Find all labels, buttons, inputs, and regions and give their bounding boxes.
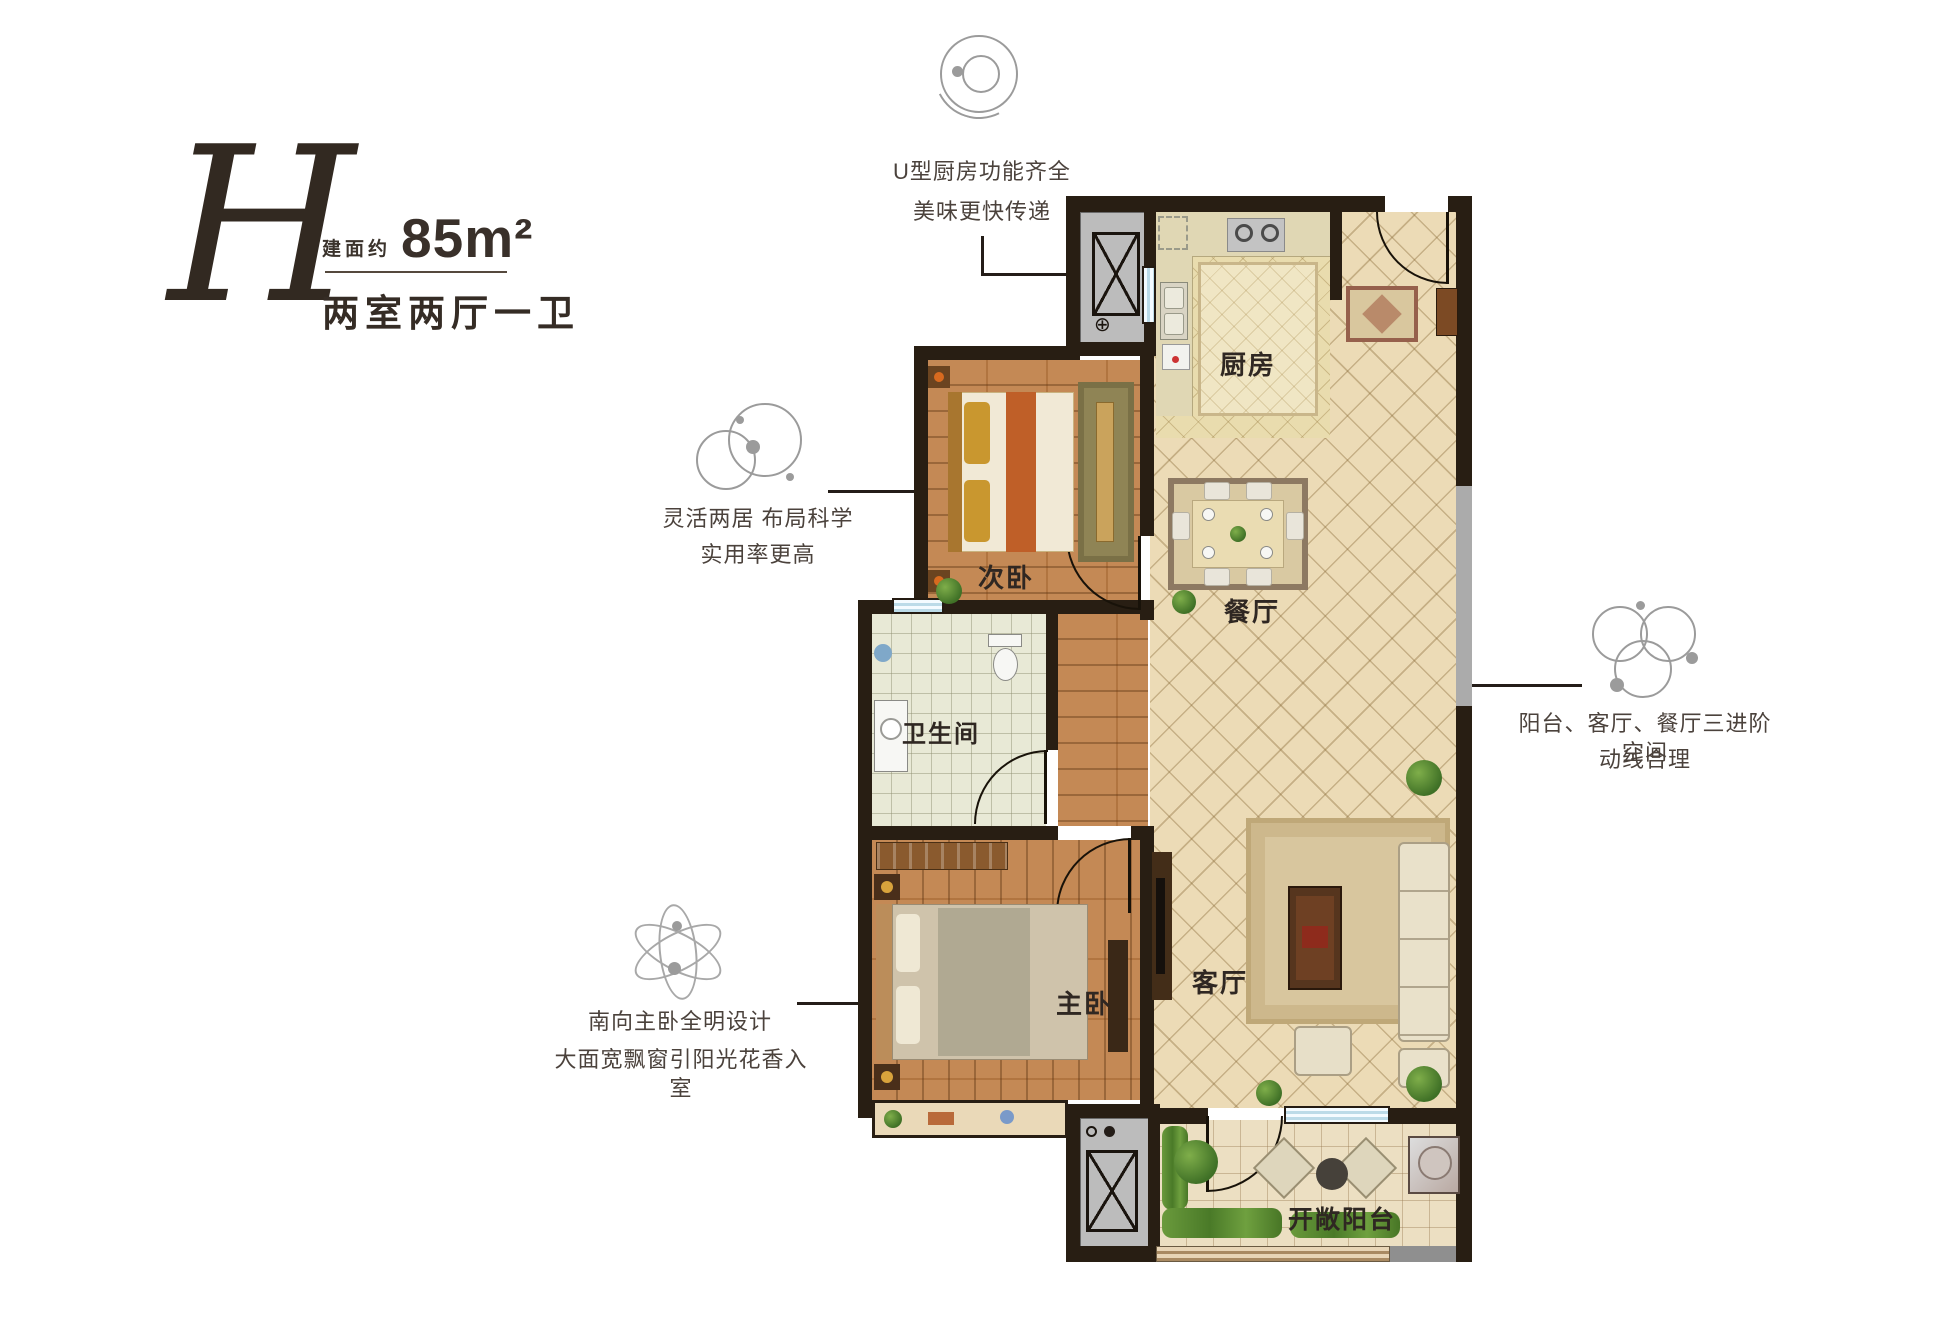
kitchen-annotation-line1: U型厨房功能齐全 xyxy=(862,158,1102,187)
living-plant-left xyxy=(1256,1080,1282,1106)
kitchen-sink-basin1 xyxy=(1164,287,1184,309)
balcony-tree xyxy=(1174,1140,1218,1184)
bedrooms-annotation-icon-small xyxy=(696,430,756,490)
core-marker-circle xyxy=(1086,1126,1097,1137)
circulation-annotation-icon-dot3 xyxy=(1610,678,1624,692)
wall-bottomcore-left xyxy=(1066,1104,1080,1262)
living-sofa xyxy=(1398,842,1450,1042)
master-wardrobe xyxy=(876,842,1008,870)
area-value: 85m² xyxy=(401,206,533,270)
bedroom2-pillow1 xyxy=(964,402,990,464)
dining-chair-top2 xyxy=(1246,482,1272,500)
wall-core-left xyxy=(1066,196,1080,356)
washing-machine-drum xyxy=(1418,1146,1452,1180)
label-kitchen: 厨房 xyxy=(1220,345,1276,382)
elevator-shaft-top xyxy=(1092,232,1140,316)
master-lamp1 xyxy=(881,881,893,893)
bay-books xyxy=(928,1112,954,1125)
label-balcony: 开敞阳台 xyxy=(1288,1200,1396,1236)
area-label: 建面约 xyxy=(322,234,391,270)
toilet-bowl xyxy=(993,648,1018,681)
living-plant-bottom xyxy=(1406,1066,1442,1102)
bedrooms-annotation-icon-dot xyxy=(746,440,760,454)
wall-bath-right-upper xyxy=(1046,614,1058,750)
dining-chair-left xyxy=(1172,512,1190,540)
dining-chair-bottom2 xyxy=(1246,568,1272,586)
wall-bedroom2-top xyxy=(914,346,1080,360)
bedrooms-annotation-icon-dot3 xyxy=(786,473,794,481)
living-armchair xyxy=(1294,1026,1352,1076)
bedrooms-annotation-line2: 实用率更高 xyxy=(652,541,864,570)
area-row: 建面约 85m² xyxy=(322,206,533,270)
bedroom2-door-leaf xyxy=(1138,536,1141,610)
kitchen-window xyxy=(1142,266,1156,324)
entry-cabinet xyxy=(1436,288,1458,336)
wall-kitchen-foyer-stub xyxy=(1330,196,1342,300)
master-blanket xyxy=(938,908,1030,1056)
kitchen-counter-dashed xyxy=(1158,216,1188,250)
stove-burner-right xyxy=(1261,224,1279,242)
floorplan-poster: H 建面约 85m² 两室两厅一卫 U型厨房功能齐全 美味更快传递 灵活两居 布… xyxy=(0,0,1959,1334)
bathroom-basket xyxy=(874,644,892,662)
circulation-annotation-icon-dot1 xyxy=(1636,601,1645,610)
master-annotation-atom-ellipse3 xyxy=(654,902,702,1001)
wall-bedroom2-left xyxy=(914,346,928,614)
label-dining: 餐厅 xyxy=(1224,592,1280,629)
living-balcony-window xyxy=(1284,1106,1390,1124)
bay-vase xyxy=(1000,1110,1014,1124)
dining-chair-top1 xyxy=(1204,482,1230,500)
floor-drain-symbol: ⊕ xyxy=(1094,312,1111,337)
wall-right-upper xyxy=(1456,196,1472,486)
label-bathroom: 卫生间 xyxy=(902,714,980,749)
master-door-leaf xyxy=(1128,838,1131,913)
toilet-tank xyxy=(988,634,1022,647)
master-pillow2 xyxy=(896,986,920,1044)
master-annotation-atom-dot1 xyxy=(672,921,682,931)
master-headboard xyxy=(876,904,892,1060)
wall-bottomcore-top xyxy=(1066,1104,1160,1118)
living-table-runner xyxy=(1302,926,1328,948)
layout-type: 两室两厅一卫 xyxy=(322,283,580,337)
dining-plate1 xyxy=(1202,508,1215,521)
balcony-corner-block xyxy=(1390,1246,1456,1262)
dining-plate4 xyxy=(1260,546,1273,559)
circulation-annotation-icon-dot2 xyxy=(1686,652,1698,664)
kitchen-annotation-line2: 美味更快传递 xyxy=(882,198,1082,227)
balcony-table xyxy=(1316,1158,1348,1190)
elevator-shaft-bottom xyxy=(1086,1150,1138,1232)
bedroom2-plant xyxy=(936,578,962,604)
dining-plate2 xyxy=(1260,508,1273,521)
master-pillow1 xyxy=(896,914,920,972)
bay-plant xyxy=(884,1110,902,1128)
label-master-bedroom: 主卧 xyxy=(1056,984,1112,1021)
dining-centerpiece xyxy=(1230,526,1246,542)
dining-plant xyxy=(1172,590,1196,614)
corridor-floor xyxy=(1058,614,1148,826)
bedroom2-pillow2 xyxy=(964,480,990,542)
bedrooms-annotation-line1: 灵活两居 布局科学 xyxy=(652,505,864,534)
tv-screen xyxy=(1156,878,1165,974)
wall-balcony-left-stub xyxy=(1160,1108,1208,1124)
kitchen-rug xyxy=(1198,262,1318,416)
label-second-bedroom: 次卧 xyxy=(978,558,1034,595)
entry-door-leaf xyxy=(1446,212,1449,284)
wall-master-top xyxy=(858,826,1058,840)
master-lamp2 xyxy=(881,1071,893,1083)
title-divider xyxy=(325,271,507,273)
core-marker-dot xyxy=(1104,1126,1115,1137)
wall-master-left xyxy=(858,826,872,1118)
bedroom2-lamp1 xyxy=(934,372,944,382)
wall-kitchen-left-upper xyxy=(1144,200,1156,266)
bathroom-basin xyxy=(880,718,902,740)
bedroom2-headboard xyxy=(948,392,962,552)
stove-burner-left xyxy=(1235,224,1253,242)
wall-bedroom2-right-upper xyxy=(1140,346,1154,536)
master-annotation-atom-dot2 xyxy=(668,962,681,975)
balcony-hedge-bottom1 xyxy=(1162,1208,1282,1238)
kitchen-sink-basin2 xyxy=(1164,313,1184,335)
kitchen-leader-vertical xyxy=(981,236,984,276)
dining-chair-right xyxy=(1286,512,1304,540)
bedrooms-annotation-icon-dot2 xyxy=(736,416,744,424)
wall-bath-left xyxy=(858,600,872,840)
fridge-dot xyxy=(1172,356,1179,363)
master-annotation-line1: 南向主卧全明设计 xyxy=(555,1008,805,1037)
bathroom-door-leaf xyxy=(1044,750,1047,824)
bedroom2-bench xyxy=(1096,402,1114,542)
wall-balcony-right-stub xyxy=(1390,1108,1456,1124)
bedroom2-bed-runner xyxy=(1006,392,1036,552)
kitchen-annotation-icon-arc xyxy=(922,17,1035,130)
dining-chair-bottom1 xyxy=(1204,568,1230,586)
circulation-annotation-line2: 动线合理 xyxy=(1508,746,1782,775)
wall-right-window-band xyxy=(1456,486,1472,706)
living-plant-top xyxy=(1406,760,1442,796)
bathroom-window xyxy=(892,598,944,614)
wall-balcony-left xyxy=(1148,1104,1160,1262)
dining-plate3 xyxy=(1202,546,1215,559)
circulation-annotation-icon-c3 xyxy=(1614,640,1672,698)
master-annotation-line2: 大面宽飘窗引阳光花香入室 xyxy=(545,1046,817,1103)
label-living: 客厅 xyxy=(1192,963,1248,1000)
balcony-railing xyxy=(1156,1246,1390,1262)
